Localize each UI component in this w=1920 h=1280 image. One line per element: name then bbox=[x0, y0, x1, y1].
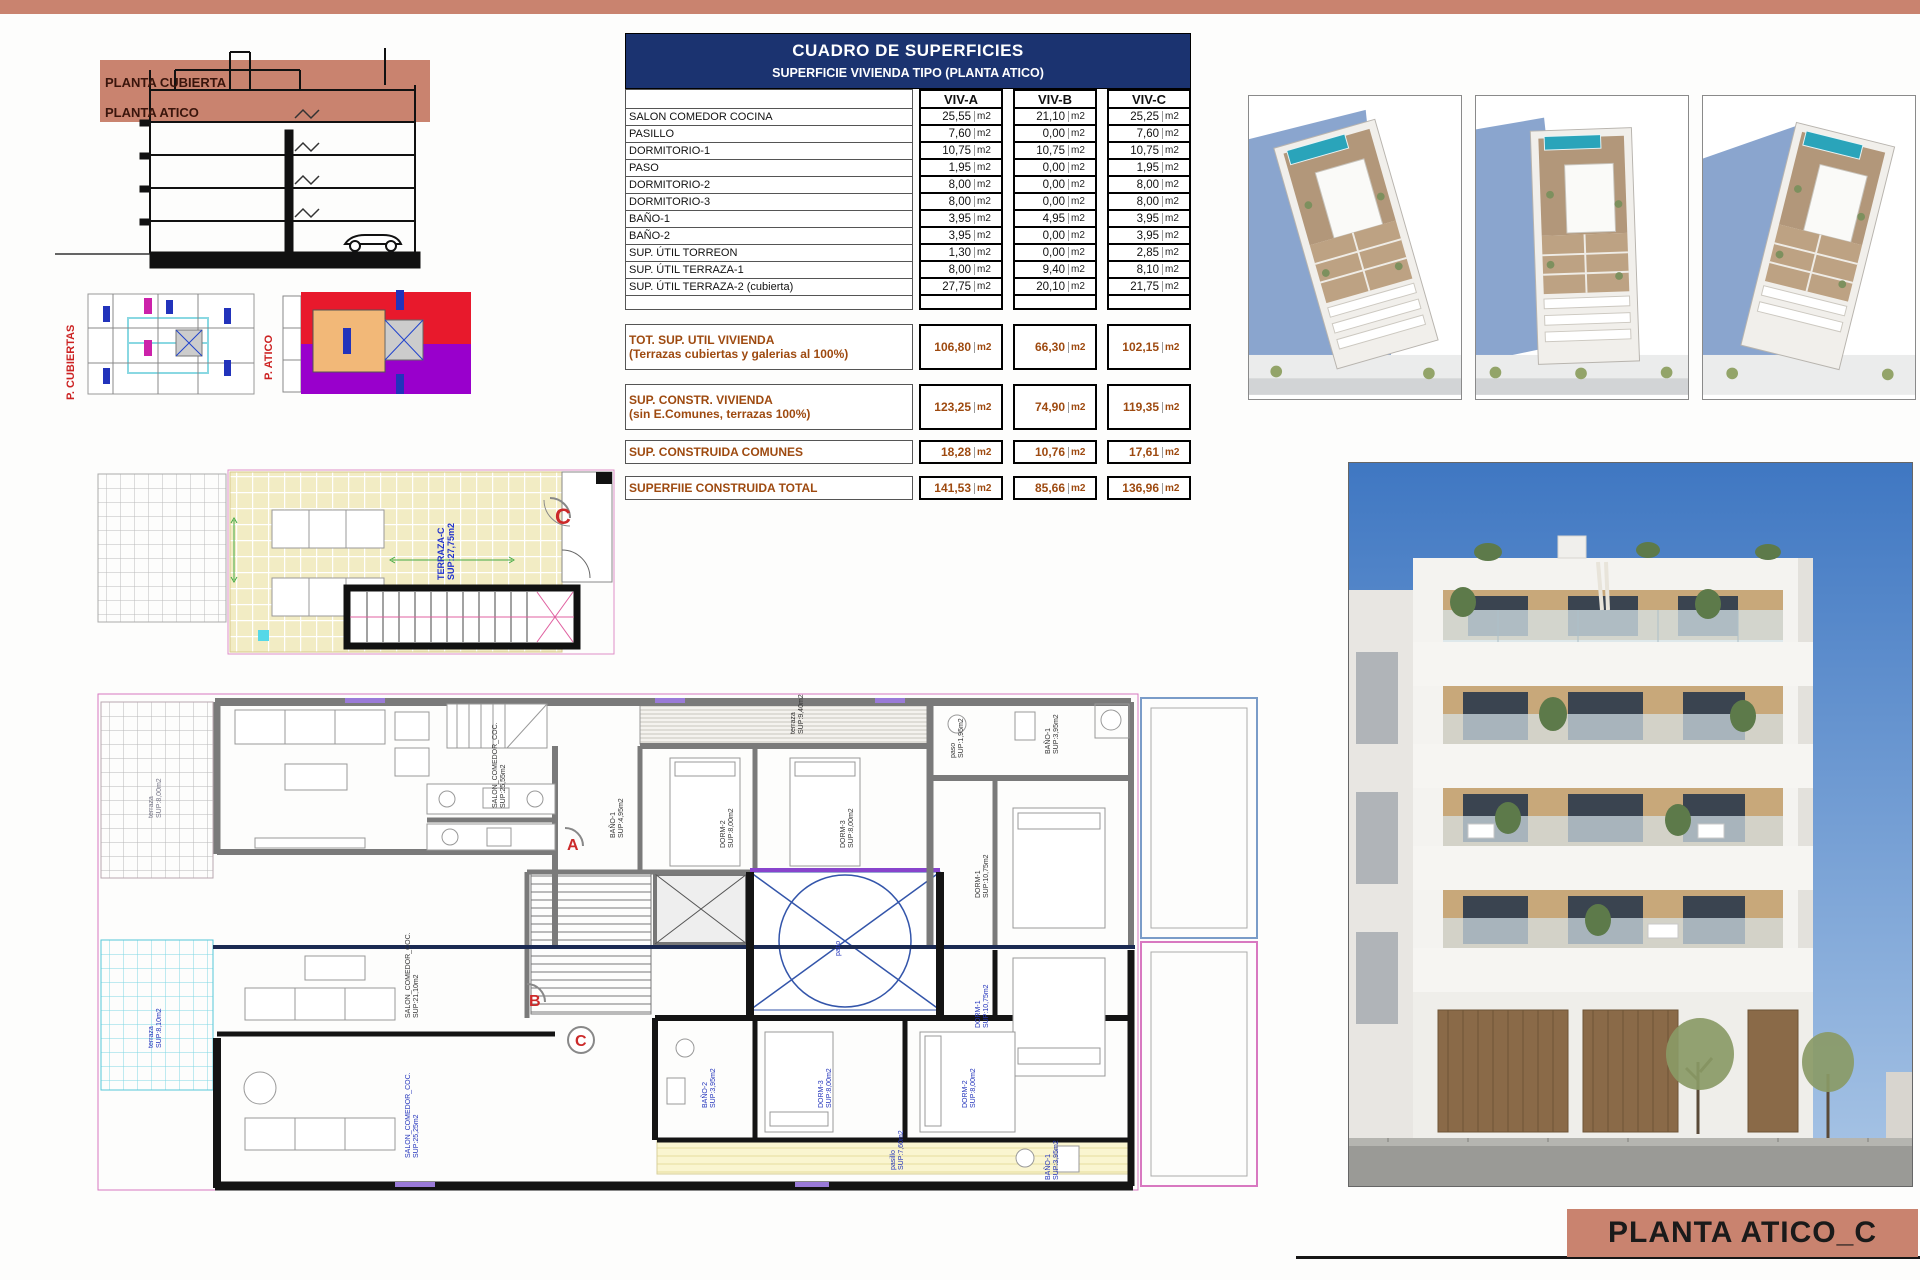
render-panel-3 bbox=[1702, 95, 1916, 400]
svg-text:A: A bbox=[567, 837, 579, 854]
table-title: CUADRO DE SUPERFICIES bbox=[626, 38, 1190, 64]
roof-terrace-plan: C TERRAZA-C SUP:27,75m2 bbox=[92, 460, 622, 700]
sheet-title: PLANTA ATICO_C bbox=[1608, 1216, 1877, 1250]
column-viv-a: VIV-A bbox=[944, 92, 978, 107]
table-row: DORMITORIO-110,75m210,75m210,75m2 bbox=[625, 143, 1191, 160]
plan-marker-c: C bbox=[568, 1027, 594, 1053]
table-summary-row: SUP. CONSTR. VIVIENDA(sin E.Comunes, ter… bbox=[625, 384, 1191, 430]
top-accent-bar bbox=[0, 0, 1920, 14]
svg-text:BAÑO-2SUP:3,95m2: BAÑO-2SUP:3,95m2 bbox=[700, 1068, 717, 1108]
sheet-title-box: PLANTA ATICO_C bbox=[1567, 1209, 1918, 1257]
surface-table-header: CUADRO DE SUPERFICIES SUPERFICIE VIVIEND… bbox=[625, 33, 1191, 89]
table-column-header: VIV-A VIV-B VIV-C bbox=[625, 89, 1191, 109]
table-row: DORMITORIO-28,00m20,00m28,00m2 bbox=[625, 177, 1191, 194]
table-row: PASO1,95m20,00m21,95m2 bbox=[625, 160, 1191, 177]
key-plan-atico-label: P. ATICO bbox=[263, 335, 275, 380]
surface-table-rows: SALON COMEDOR COCINA25,55m221,10m225,25m… bbox=[625, 109, 1191, 500]
column-viv-c: VIV-C bbox=[1132, 92, 1166, 107]
table-summary-row: SUP. CONSTRUIDA COMUNES18,28m210,76m217,… bbox=[625, 440, 1191, 464]
render-panel-2 bbox=[1475, 95, 1689, 400]
section-label-cubierta: PLANTA CUBIERTA bbox=[105, 75, 227, 90]
svg-text:patio: patio bbox=[835, 941, 842, 956]
table-subtitle: SUPERFICIE VIVIENDA TIPO (PLANTA ATICO) bbox=[626, 64, 1190, 82]
table-row bbox=[625, 296, 1191, 310]
facade-render bbox=[1348, 462, 1913, 1187]
svg-text:C: C bbox=[555, 504, 571, 529]
table-summary-row: SUPERFIIE CONSTRUIDA TOTAL141,53m285,66m… bbox=[625, 476, 1191, 500]
table-row: DORMITORIO-38,00m20,00m28,00m2 bbox=[625, 194, 1191, 211]
roof-terrace-label: TERRAZA-C SUP:27,75m2 bbox=[436, 523, 456, 580]
render-strip bbox=[1248, 95, 1912, 400]
svg-text:DORM-1SUP:10,75m2: DORM-1SUP:10,75m2 bbox=[975, 984, 990, 1028]
key-plan-cubiertas bbox=[88, 294, 254, 394]
svg-text:SALON_COMEDOR_COC.SUP:25,25m2: SALON_COMEDOR_COC.SUP:25,25m2 bbox=[405, 1072, 420, 1158]
table-row: SUP. ÚTIL TERRAZA-2 (cubierta)27,75m220,… bbox=[625, 279, 1191, 296]
svg-text:DORM-1SUP:10,75m2: DORM-1SUP:10,75m2 bbox=[975, 854, 990, 898]
svg-text:B: B bbox=[529, 993, 541, 1010]
svg-text:BAÑO-1SUP:3,95m2: BAÑO-1SUP:3,95m2 bbox=[1043, 714, 1060, 754]
section-label-atico: PLANTA ATICO bbox=[105, 105, 199, 120]
surface-table: CUADRO DE SUPERFICIES SUPERFICIE VIVIEND… bbox=[625, 33, 1191, 500]
patio-lightwell bbox=[750, 870, 940, 1010]
table-row: SALON COMEDOR COCINA25,55m221,10m225,25m… bbox=[625, 109, 1191, 126]
svg-text:BAÑO-1SUP:4,95m2: BAÑO-1SUP:4,95m2 bbox=[608, 798, 625, 838]
key-plan-cubiertas-label: P. CUBIERTAS bbox=[65, 325, 77, 400]
table-row: PASILLO7,60m20,00m27,60m2 bbox=[625, 126, 1191, 143]
table-row: SUP. ÚTIL TORREON1,30m20,00m22,85m2 bbox=[625, 245, 1191, 262]
table-row: SUP. ÚTIL TERRAZA-18,00m29,40m28,10m2 bbox=[625, 262, 1191, 279]
key-plan-atico bbox=[283, 290, 471, 394]
plan-marker-a: A bbox=[565, 828, 583, 854]
car-glyph bbox=[345, 235, 401, 251]
svg-text:C: C bbox=[575, 1033, 587, 1050]
table-row: BAÑO-23,95m20,00m23,95m2 bbox=[625, 228, 1191, 245]
floor-plan: A B C terrazaSUP:8,00m2 terrazaSUP:8,10m… bbox=[95, 688, 1270, 1200]
key-plans: P. CUBIERTAS P. ATI bbox=[58, 288, 478, 406]
render-panel-1 bbox=[1248, 95, 1462, 400]
column-viv-b: VIV-B bbox=[1038, 92, 1072, 107]
building-section-view: PLANTA CUBIERTA PLANTA ATICO bbox=[55, 30, 435, 290]
table-row: BAÑO-13,95m24,95m23,95m2 bbox=[625, 211, 1191, 228]
table-summary-row: TOT. SUP. UTIL VIVIENDA(Terrazas cubiert… bbox=[625, 324, 1191, 370]
drawing-sheet: PLANTA CUBIERTA PLANTA ATICO P. CUBIERTA… bbox=[0, 0, 1920, 1280]
